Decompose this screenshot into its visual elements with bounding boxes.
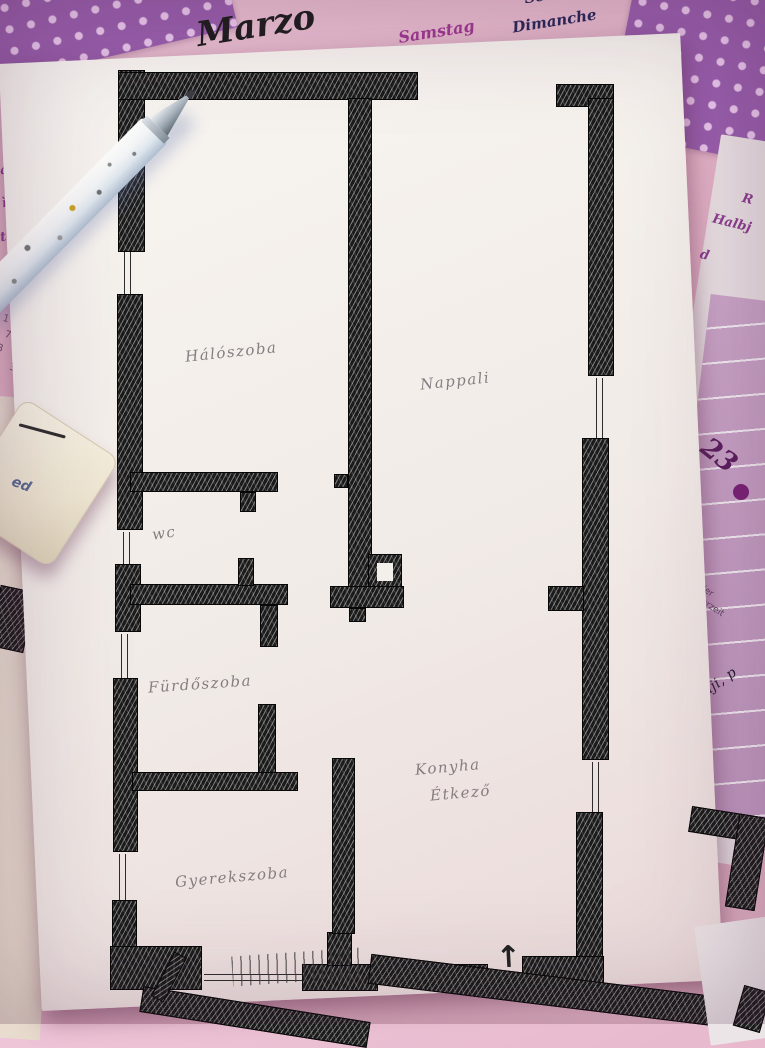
wall-segment <box>588 98 614 376</box>
wall-segment <box>260 605 278 647</box>
wall-segment <box>240 492 256 512</box>
window-marker <box>121 634 128 678</box>
wall-segment <box>332 758 355 934</box>
wall-segment <box>330 586 404 608</box>
sketch-corner-block <box>677 806 765 916</box>
wall-segment <box>582 438 609 760</box>
day-name-dimanche: Dimanche <box>511 5 598 36</box>
wall-segment <box>110 946 202 990</box>
wall-segment <box>112 900 137 952</box>
wall-segment <box>334 474 348 488</box>
window-marker <box>119 854 126 900</box>
wall-flue-box-inner <box>377 563 393 581</box>
calendar-dot <box>733 484 749 500</box>
wall-segment <box>132 772 298 791</box>
wall-segment <box>130 472 278 492</box>
window-marker <box>124 252 131 294</box>
eraser-label-text: ed <box>9 474 33 496</box>
wall-segment <box>548 586 584 611</box>
eraser-pencil-mark <box>19 423 66 438</box>
wall-segment <box>113 678 138 852</box>
wall-segment <box>348 98 372 588</box>
wall-segment <box>349 608 366 622</box>
wall-segment <box>576 812 603 959</box>
window-marker <box>596 378 603 438</box>
room-label-wc: wc <box>151 522 178 543</box>
window-marker <box>592 762 599 812</box>
wall-segment <box>238 558 254 586</box>
window-marker <box>123 532 130 564</box>
wall-segment <box>117 294 143 530</box>
wall-segment <box>130 584 288 605</box>
